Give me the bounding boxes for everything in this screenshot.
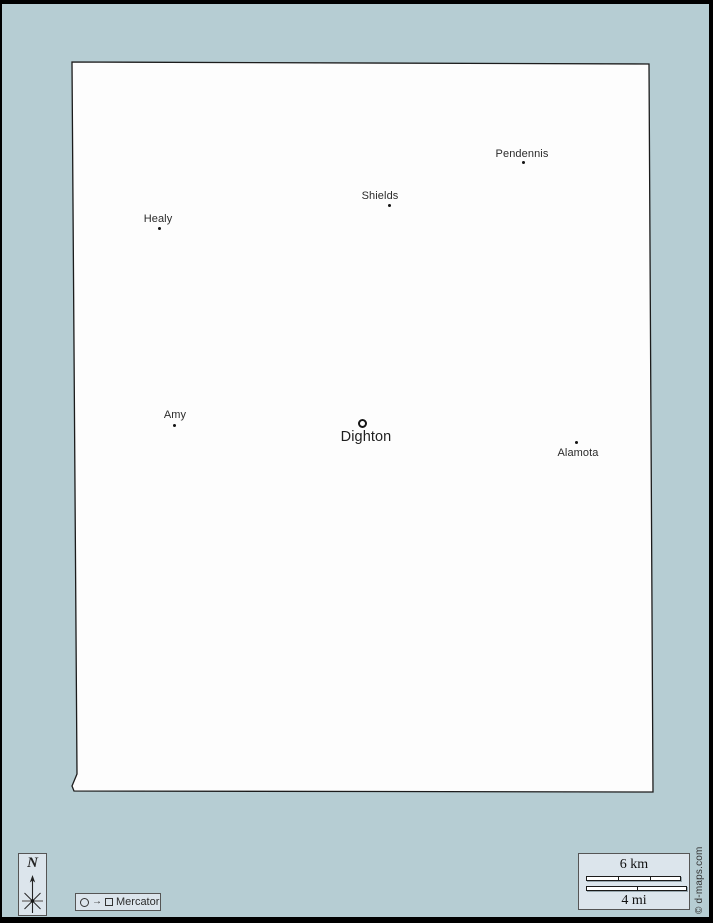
scale-mi-label: 4 mi: [579, 893, 689, 909]
county-outline: [0, 0, 713, 923]
scale-km-tick-1: [618, 877, 619, 880]
scale-bar-mi: [586, 886, 687, 891]
healy-marker-dot: [158, 227, 161, 230]
compass-north-label: N: [19, 856, 46, 871]
scale-km-tick-2: [650, 877, 651, 880]
map-canvas: Healy Shields Pendennis Amy Alamota Digh…: [0, 0, 713, 923]
amy-marker-dot: [173, 424, 176, 427]
compass-rose-icon: [19, 872, 46, 914]
shields-marker-dot: [388, 204, 391, 207]
sphere-icon: [80, 898, 89, 907]
dighton-marker-ring: [358, 419, 367, 428]
projection-legend: → Mercator: [75, 893, 161, 911]
copyright-credit: © d-maps.com: [694, 846, 705, 914]
scale-bar-km: [586, 876, 681, 881]
plane-icon: [105, 898, 113, 906]
pendennis-marker-dot: [522, 161, 525, 164]
scale-bar: 6 km 4 mi: [578, 853, 690, 910]
scale-km-label: 6 km: [579, 857, 689, 873]
projection-label: Mercator: [116, 897, 159, 908]
amy-label: Amy: [164, 409, 186, 421]
healy-label: Healy: [144, 213, 173, 225]
projection-arrow-icon: →: [92, 897, 102, 907]
pendennis-label: Pendennis: [496, 148, 549, 160]
shields-label: Shields: [362, 190, 399, 202]
alamota-marker-dot: [575, 441, 578, 444]
alamota-label: Alamota: [557, 447, 598, 459]
compass: N: [18, 853, 47, 916]
dighton-label: Dighton: [341, 430, 392, 446]
scale-mi-tick-1: [637, 887, 638, 890]
